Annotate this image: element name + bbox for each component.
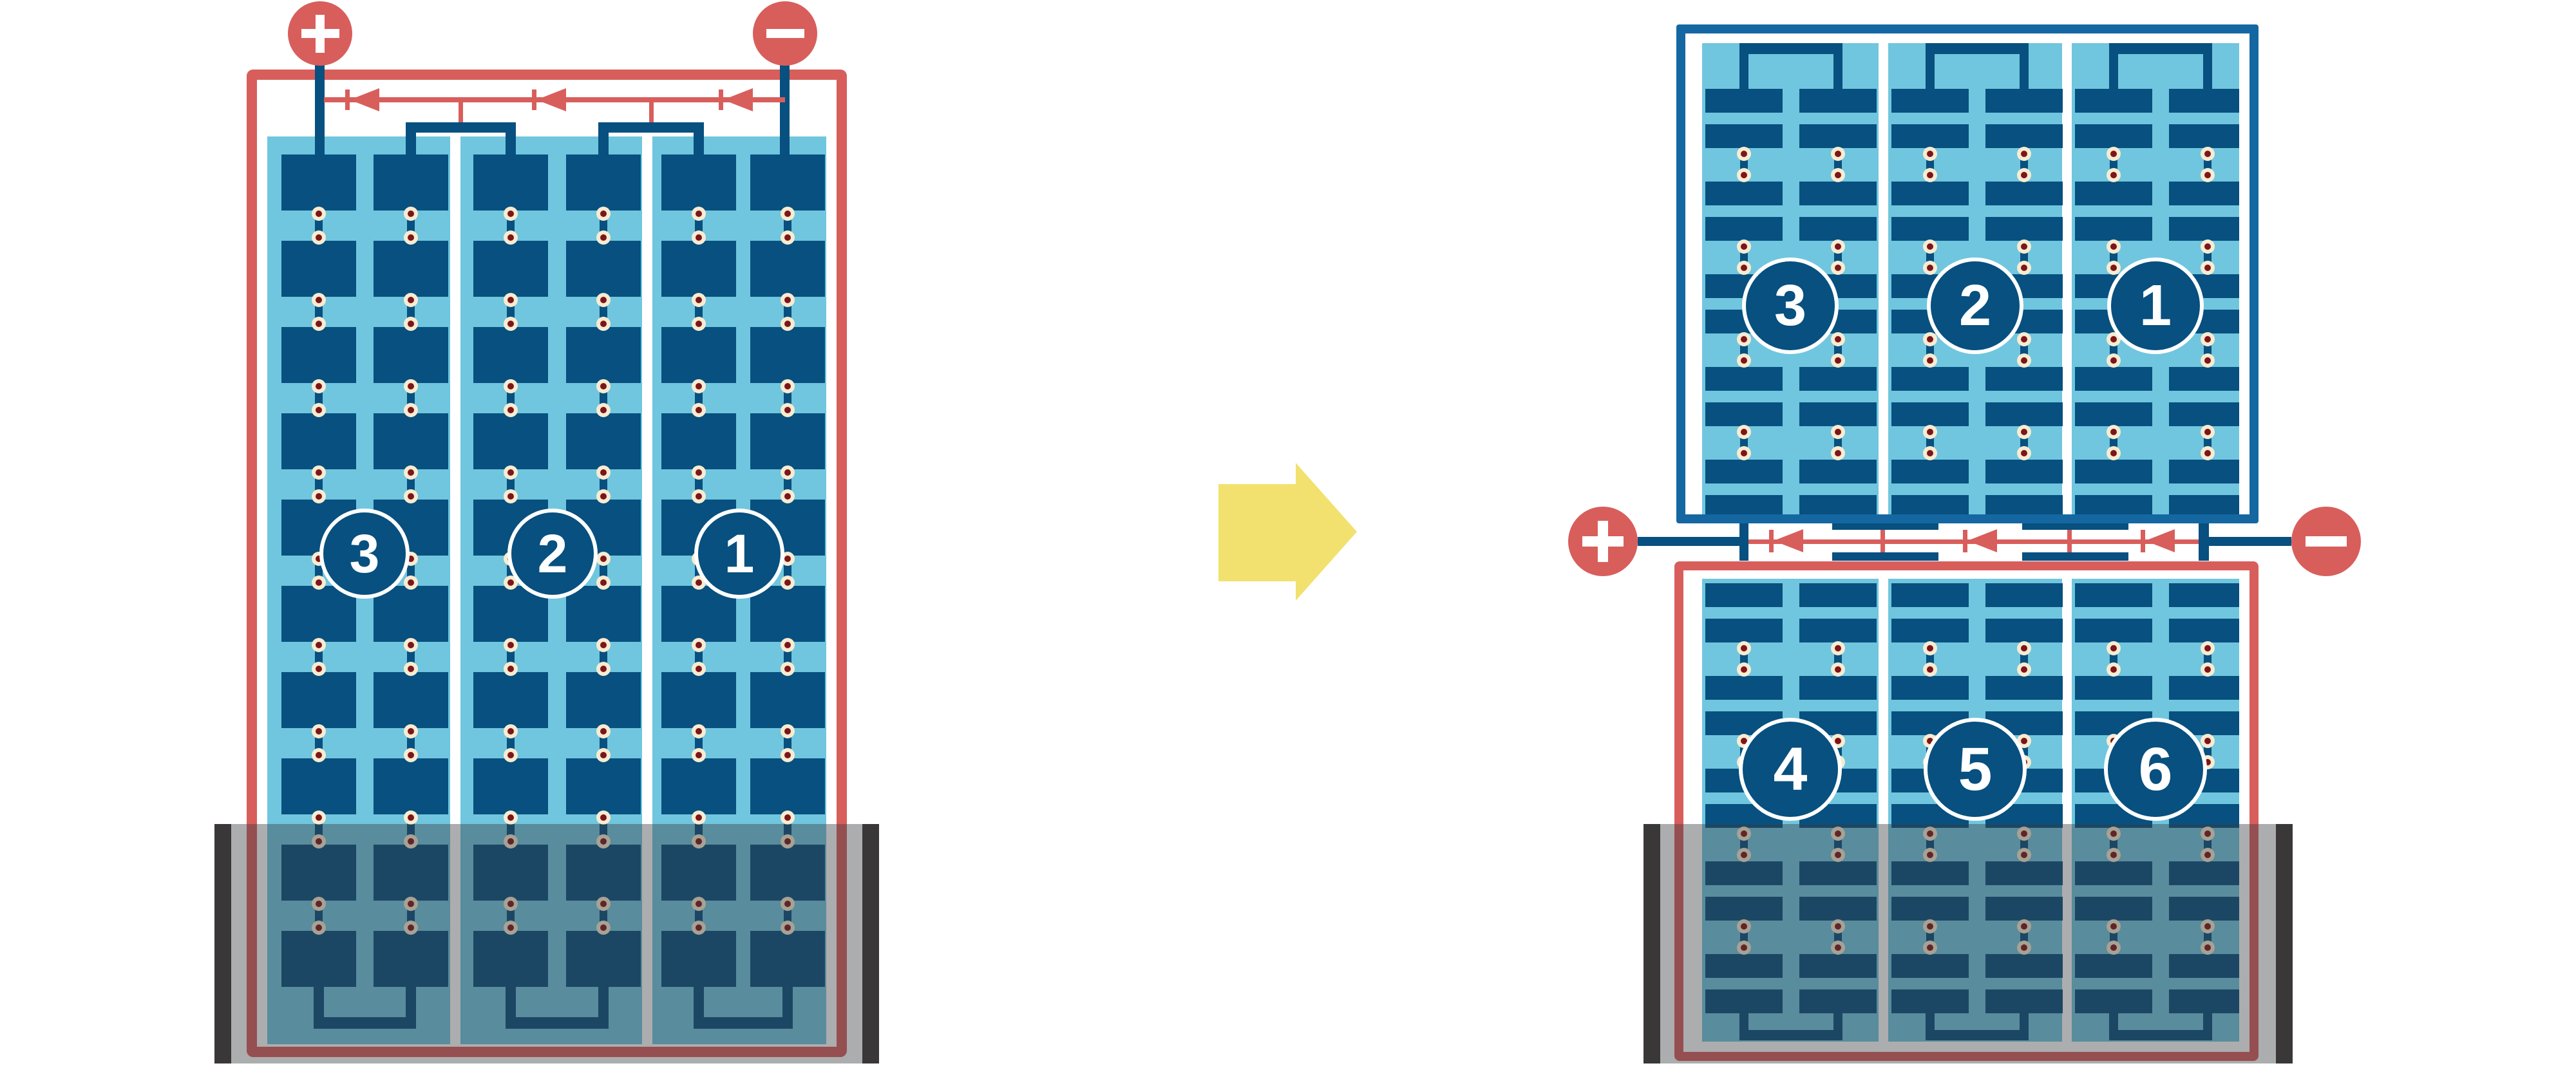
water-overlay xyxy=(1643,824,2293,1063)
bus-tab xyxy=(2022,552,2128,561)
bus-stub xyxy=(649,102,654,124)
bus-stub xyxy=(1880,530,1885,552)
bypass-diode-icon xyxy=(1769,530,1774,552)
bypass-diode-icon xyxy=(345,89,350,110)
bus-stub xyxy=(2067,530,2072,552)
minus-icon xyxy=(766,29,804,38)
positive-terminal xyxy=(1568,507,1638,576)
module-frame xyxy=(1676,24,2259,523)
terminal-lead-wire xyxy=(1638,537,1739,546)
diagram-canvas: 321 321456 xyxy=(0,0,2576,1068)
terminal-lead-wire xyxy=(2209,537,2291,546)
overlay-end-bar xyxy=(214,824,231,1063)
negative-terminal xyxy=(2291,507,2361,576)
overlay-end-bar xyxy=(862,824,879,1063)
plus-icon-vertical xyxy=(1598,521,1608,562)
terminal-lead-wire xyxy=(780,62,790,155)
bus-stub xyxy=(459,102,463,124)
string-interconnect-leg xyxy=(406,132,416,155)
bus-post xyxy=(2199,523,2209,561)
bypass-diode-icon xyxy=(1963,530,1967,552)
bypass-diode-icon xyxy=(719,89,723,110)
bypass-diode-icon xyxy=(532,89,536,110)
bypass-diode-arrow-icon xyxy=(1967,529,1997,552)
bypass-diode-arrow-icon xyxy=(1774,529,1803,552)
overlay-end-bar xyxy=(2276,824,2293,1063)
bypass-diode-arrow-icon xyxy=(350,88,379,111)
terminal-lead-wire xyxy=(315,62,325,155)
string-interconnect-leg xyxy=(598,132,609,155)
string-interconnect xyxy=(406,122,516,133)
plus-icon-vertical xyxy=(316,15,325,53)
water-overlay xyxy=(214,824,879,1063)
string-interconnect xyxy=(598,122,704,133)
bus-post xyxy=(1739,523,1748,561)
string-interconnect-leg xyxy=(694,132,704,155)
minus-icon xyxy=(2306,536,2347,547)
bypass-diode-icon xyxy=(2141,530,2145,552)
bus-tab xyxy=(1832,523,1938,530)
negative-terminal xyxy=(753,1,817,66)
bypass-diode-arrow-icon xyxy=(536,88,566,111)
bus-tab xyxy=(1832,552,1938,561)
string-interconnect-leg xyxy=(506,132,516,155)
bypass-diode-arrow-icon xyxy=(2145,529,2175,552)
positive-terminal xyxy=(288,1,352,66)
overlay-end-bar xyxy=(1643,824,1660,1063)
bus-tab xyxy=(2022,523,2128,530)
bypass-diode-arrow-icon xyxy=(723,88,753,111)
